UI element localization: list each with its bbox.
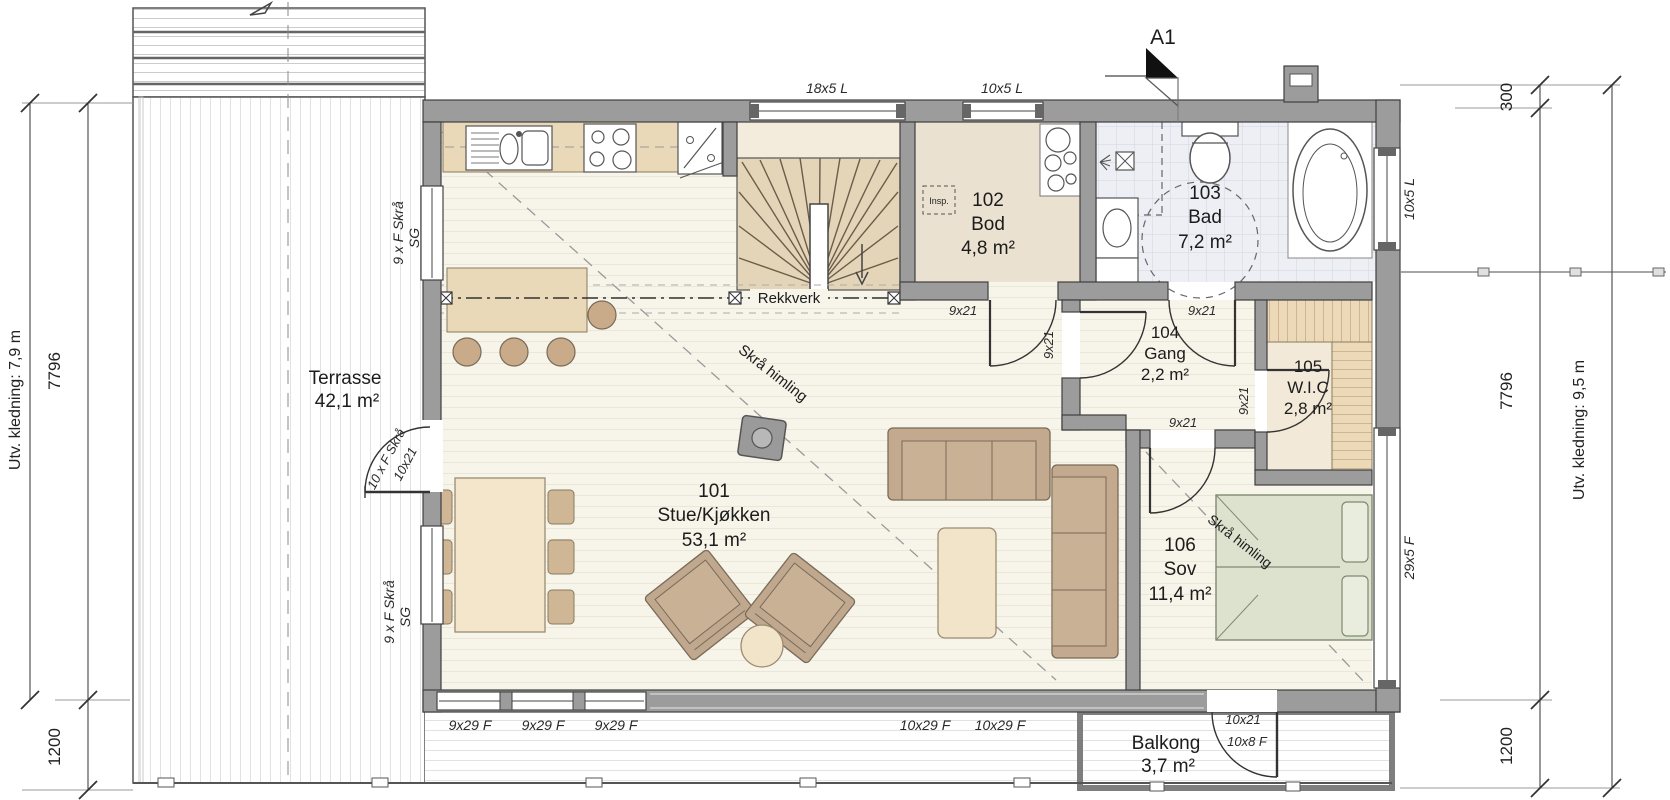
dim-left-total: 7796: [45, 352, 64, 390]
window-label-left-1a: 9 x F Skrå: [390, 201, 406, 265]
balcony-name: Balkong: [1132, 733, 1201, 754]
section-label: A1: [1150, 26, 1176, 49]
door-label-bad: 9x21: [1188, 303, 1216, 318]
dim-left-cladding: Utv. kledning: 7,9 m: [7, 330, 24, 470]
room-104-area: 2,2 m²: [1141, 365, 1190, 384]
window-label-left-2a: 9 x F Skrå: [381, 580, 397, 644]
bar-counter: [447, 268, 587, 332]
door-label-balcony-a: 10x21: [1225, 712, 1260, 727]
window-label-10x29-1: 10x29 F: [900, 717, 952, 733]
room-106-name: Sov: [1164, 559, 1197, 580]
stairs: [737, 122, 900, 290]
terrace-area: 42,1 m²: [315, 391, 379, 412]
window-label-10x5-right: 10x5 L: [1401, 178, 1417, 220]
door-label-gang: 9x21: [1041, 331, 1056, 359]
room-105-area: 2,8 m²: [1284, 399, 1333, 418]
room-104-number: 104: [1151, 323, 1179, 342]
kitchen-cooktop: [584, 124, 636, 172]
railing-label: Rekkverk: [758, 290, 821, 307]
wood-stove: [737, 415, 786, 461]
door-label-sov: 9x21: [1169, 415, 1197, 430]
window-label-9x29-2: 9x29 F: [522, 717, 566, 733]
dim-right-cladding: Utv. kledning: 9,5 m: [1571, 360, 1588, 500]
balcony-area: 3,7 m²: [1141, 756, 1195, 777]
door-label-wic: 9x21: [1236, 387, 1251, 415]
room-106-number: 106: [1164, 535, 1196, 556]
inspection-label: Insp.: [929, 196, 949, 206]
room-104-name: Gang: [1144, 344, 1186, 363]
room-103-area: 7,2 m²: [1178, 232, 1232, 253]
reference-line-right: [1400, 268, 1666, 276]
terrace-name: Terrasse: [309, 368, 382, 389]
room-105-name: W.I.C: [1287, 378, 1329, 397]
bathtub: [1293, 129, 1367, 251]
dim-right-overhang: 300: [1497, 83, 1516, 111]
door-label-bod: 9x21: [949, 303, 977, 318]
dim-right-total: 7796: [1497, 372, 1516, 410]
floor-plan-drawing: Rekkverk: [0, 0, 1670, 800]
terrace-deck: [133, 97, 425, 783]
window-label-10x5-top: 10x5 L: [981, 80, 1023, 96]
room-102-number: 102: [972, 190, 1004, 211]
window-label-18x5: 18x5 L: [806, 80, 848, 96]
room-101-number: 101: [698, 481, 730, 502]
sofa-vertical: [1052, 465, 1118, 658]
dining-table: [426, 478, 574, 632]
sofa-horizontal: [888, 428, 1050, 500]
terrace-steps: [133, 8, 425, 97]
coffee-table: [938, 528, 996, 638]
kitchen-sink: [466, 126, 552, 170]
room-105-number: 105: [1294, 357, 1322, 376]
dim-left-deck: 1200: [45, 728, 64, 766]
room-101-area: 53,1 m²: [682, 530, 746, 551]
room-103-name: Bad: [1188, 207, 1222, 228]
water-heater: [1040, 124, 1080, 196]
door-label-balcony-b: 10x8 F: [1227, 734, 1268, 749]
room-101-name: Stue/Kjøkken: [658, 505, 771, 526]
dim-right-deck: 1200: [1497, 727, 1516, 765]
window-label-29x5: 29x5 F: [1401, 535, 1417, 580]
window-label-9x29-1: 9x29 F: [449, 717, 493, 733]
bed: [1216, 495, 1372, 640]
chimney-vent: [1290, 74, 1312, 86]
room-103-number: 103: [1189, 183, 1221, 204]
room-106-area: 11,4 m²: [1148, 584, 1211, 605]
window-label-left-2b: SG: [397, 607, 413, 627]
window-label-10x29-2: 10x29 F: [975, 717, 1027, 733]
window-label-9x29-3: 9x29 F: [595, 717, 639, 733]
room-102-area: 4,8 m²: [961, 238, 1015, 259]
floor-plan-canvas: Rekkverk: [0, 0, 1670, 800]
window-label-left-1b: SG: [406, 228, 422, 248]
side-table: [741, 625, 783, 667]
bathroom-sink: [1096, 198, 1138, 284]
room-102-name: Bod: [971, 214, 1005, 235]
